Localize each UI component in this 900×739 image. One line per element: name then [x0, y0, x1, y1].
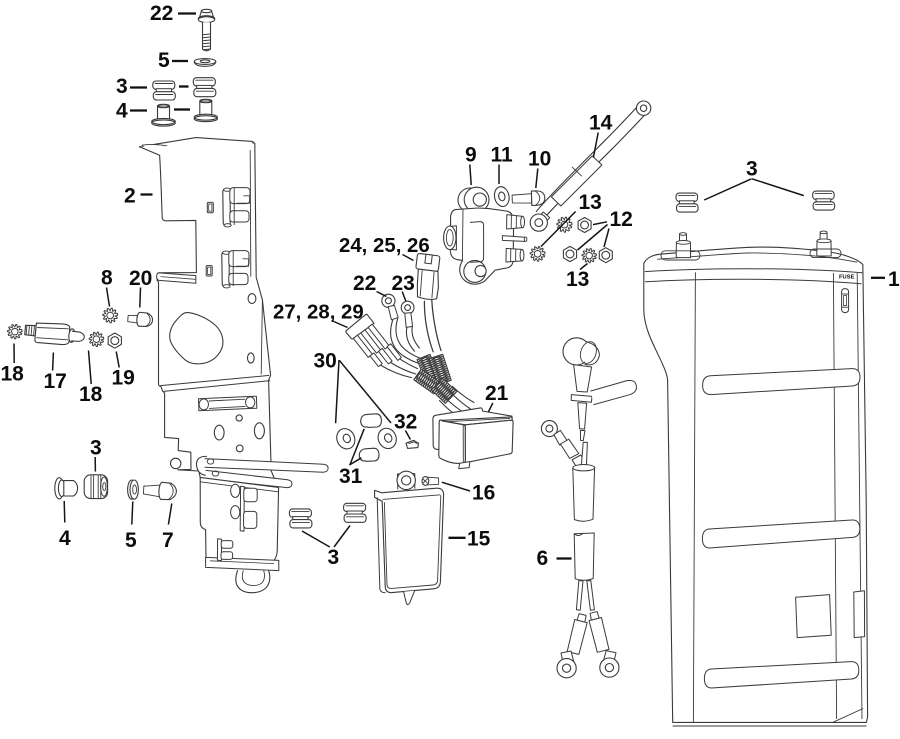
svg-text:4: 4 — [116, 100, 128, 123]
svg-text:9: 9 — [465, 144, 477, 167]
svg-text:21: 21 — [485, 382, 509, 405]
svg-text:19: 19 — [112, 367, 135, 390]
svg-text:13: 13 — [566, 268, 589, 291]
svg-text:17: 17 — [44, 370, 67, 393]
svg-text:11: 11 — [491, 144, 514, 167]
svg-text:22: 22 — [150, 2, 173, 25]
svg-text:22: 22 — [353, 272, 376, 295]
svg-text:20: 20 — [129, 267, 152, 290]
svg-text:13: 13 — [579, 191, 602, 214]
svg-text:7: 7 — [162, 529, 174, 552]
svg-text:16: 16 — [472, 482, 495, 505]
svg-text:10: 10 — [528, 148, 551, 171]
svg-text:5: 5 — [125, 529, 137, 552]
svg-text:3: 3 — [90, 437, 102, 460]
svg-text:15: 15 — [467, 528, 491, 551]
svg-text:12: 12 — [610, 208, 633, 231]
svg-text:6: 6 — [537, 547, 549, 570]
svg-text:5: 5 — [158, 49, 170, 72]
svg-text:3: 3 — [328, 546, 340, 569]
svg-text:18: 18 — [79, 383, 103, 406]
svg-text:4: 4 — [59, 527, 71, 550]
svg-text:31: 31 — [339, 465, 363, 488]
svg-text:14: 14 — [589, 112, 613, 135]
svg-text:8: 8 — [101, 267, 113, 290]
svg-text:3: 3 — [116, 75, 128, 98]
svg-text:FUSE: FUSE — [839, 275, 855, 281]
svg-text:30: 30 — [314, 350, 337, 373]
svg-text:2: 2 — [124, 185, 136, 208]
svg-text:27, 28, 29: 27, 28, 29 — [273, 302, 364, 324]
svg-text:32: 32 — [394, 411, 417, 434]
svg-text:24, 25, 26: 24, 25, 26 — [339, 235, 430, 257]
svg-text:23: 23 — [392, 272, 415, 295]
svg-text:1: 1 — [888, 268, 900, 291]
svg-text:3: 3 — [746, 158, 758, 181]
svg-text:18: 18 — [1, 363, 25, 386]
